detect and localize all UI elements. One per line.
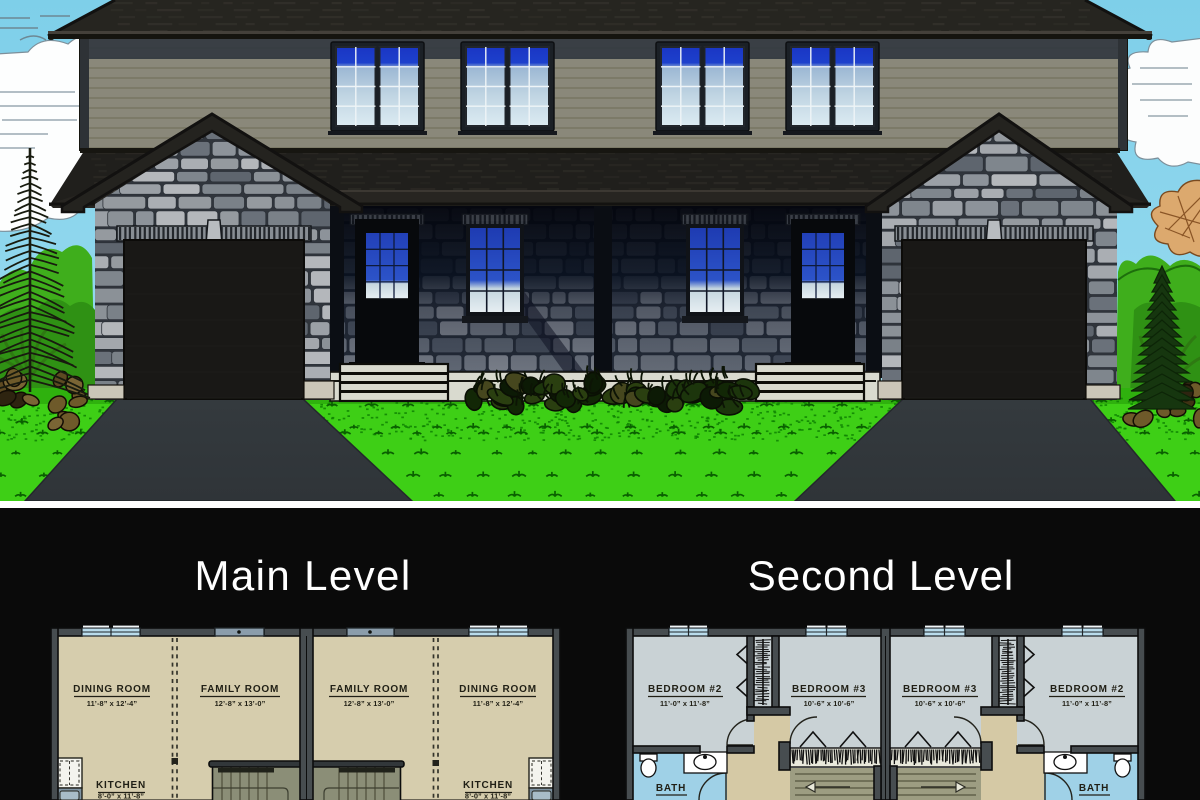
svg-text:BEDROOM #3: BEDROOM #3 bbox=[903, 684, 977, 695]
svg-text:BEDROOM #3: BEDROOM #3 bbox=[792, 684, 866, 695]
svg-text:8’-0” x 11’-8”: 8’-0” x 11’-8” bbox=[98, 792, 144, 800]
svg-text:DINING ROOM: DINING ROOM bbox=[73, 684, 151, 695]
svg-text:BEDROOM #2: BEDROOM #2 bbox=[1050, 684, 1124, 695]
svg-text:11’-0” x 11’-8”: 11’-0” x 11’-8” bbox=[660, 699, 710, 708]
svg-text:10’-6” x 10’-6”: 10’-6” x 10’-6” bbox=[804, 699, 855, 708]
svg-text:Main Level: Main Level bbox=[194, 552, 411, 599]
svg-text:11’-8” x 12’-4”: 11’-8” x 12’-4” bbox=[87, 699, 138, 708]
svg-text:12’-8” x 13’-0”: 12’-8” x 13’-0” bbox=[215, 699, 266, 708]
svg-text:BATH: BATH bbox=[656, 783, 686, 794]
svg-text:10’-6” x 10’-6”: 10’-6” x 10’-6” bbox=[915, 699, 966, 708]
svg-text:FAMILY ROOM: FAMILY ROOM bbox=[201, 684, 279, 695]
svg-text:11’-0” x 11’-8”: 11’-0” x 11’-8” bbox=[1062, 699, 1112, 708]
svg-text:Second Level: Second Level bbox=[748, 552, 1015, 599]
svg-text:KITCHEN: KITCHEN bbox=[463, 780, 513, 791]
svg-text:FAMILY ROOM: FAMILY ROOM bbox=[330, 684, 408, 695]
svg-text:BEDROOM #2: BEDROOM #2 bbox=[648, 684, 722, 695]
svg-text:12’-8” x 13’-0”: 12’-8” x 13’-0” bbox=[344, 699, 395, 708]
svg-text:11’-8” x 12’-4”: 11’-8” x 12’-4” bbox=[473, 699, 524, 708]
svg-text:8’-0” x 11’-8”: 8’-0” x 11’-8” bbox=[465, 792, 511, 800]
svg-text:DINING ROOM: DINING ROOM bbox=[459, 684, 537, 695]
svg-text:KITCHEN: KITCHEN bbox=[96, 780, 146, 791]
svg-text:BATH: BATH bbox=[1079, 783, 1109, 794]
